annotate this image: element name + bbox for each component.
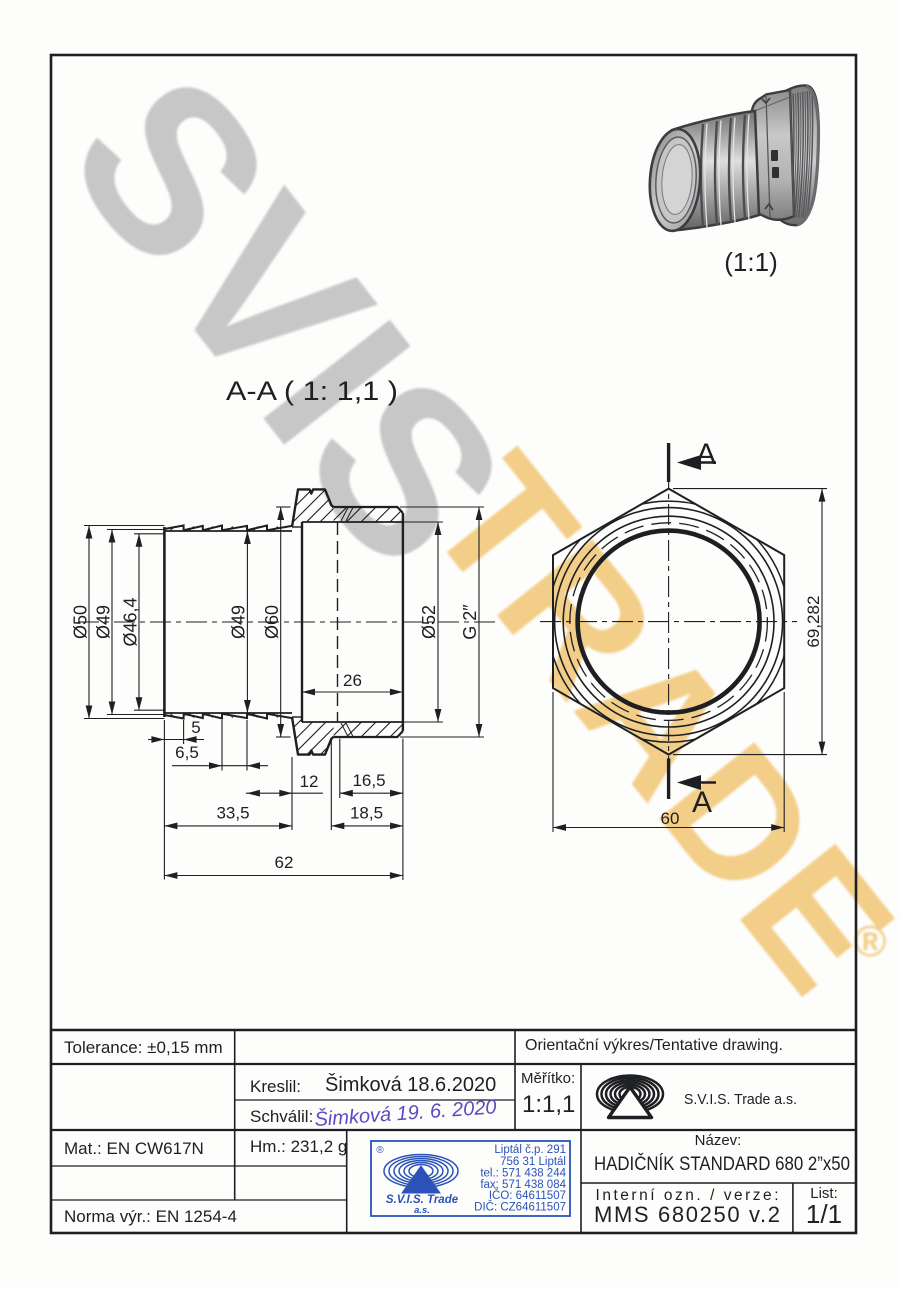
svg-text:Kreslil:: Kreslil: <box>250 1077 301 1096</box>
svg-text:62: 62 <box>275 853 294 872</box>
svg-text:a.s.: a.s. <box>414 1205 430 1216</box>
svg-text:5: 5 <box>191 718 200 737</box>
svg-text:1/1: 1/1 <box>806 1199 842 1229</box>
svg-text:Měřítko:: Měřítko: <box>521 1070 575 1087</box>
svg-text:Ø49: Ø49 <box>94 605 114 639</box>
svg-text:Ø46,4: Ø46,4 <box>121 597 141 646</box>
svg-text:tel.: 571 438 244: tel.: 571 438 244 <box>480 1168 566 1180</box>
svg-text:Orientační výkres/Tentative dr: Orientační výkres/Tentative drawing. <box>525 1037 783 1054</box>
svg-text:DIČ: CZ64611507: DIČ: CZ64611507 <box>474 1201 566 1214</box>
svg-text:16,5: 16,5 <box>352 771 385 790</box>
svg-text:®: ® <box>376 1145 384 1156</box>
svg-text:60: 60 <box>661 809 680 828</box>
svg-text:33,5: 33,5 <box>216 804 249 823</box>
svg-text:Liptál č.p. 291: Liptál č.p. 291 <box>494 1144 566 1156</box>
svg-text:A: A <box>696 438 716 471</box>
svg-text:Hm.: 231,2 g: Hm.: 231,2 g <box>250 1137 347 1156</box>
svg-text:Ø52: Ø52 <box>419 605 439 639</box>
svg-text:MMS 680250 v.2: MMS 680250 v.2 <box>594 1202 780 1227</box>
svg-text:Ø49: Ø49 <box>229 605 249 639</box>
svg-text:Název:: Název: <box>695 1132 742 1149</box>
svg-text:G 2″: G 2″ <box>460 604 480 640</box>
svg-text:S.V.I.S. Trade a.s.: S.V.I.S. Trade a.s. <box>684 1091 797 1108</box>
svg-text:26: 26 <box>343 671 362 690</box>
svg-text:756 31 Liptál: 756 31 Liptál <box>500 1156 566 1168</box>
svg-text:6,5: 6,5 <box>175 743 199 762</box>
svg-text:1:1,1: 1:1,1 <box>522 1091 575 1118</box>
svg-text:A-A ( 1: 1,1 ): A-A ( 1: 1,1 ) <box>226 376 398 406</box>
svg-text:Schválil:: Schválil: <box>250 1107 313 1126</box>
svg-text:A: A <box>692 786 712 819</box>
svg-text:12: 12 <box>300 772 319 791</box>
svg-text:69,282: 69,282 <box>804 596 823 648</box>
svg-text:IČO: 64611507: IČO: 64611507 <box>489 1189 566 1202</box>
svg-text:Mat.: EN CW617N: Mat.: EN CW617N <box>64 1139 204 1158</box>
svg-text:®: ® <box>854 917 886 966</box>
svg-text:Šimková 18.6.2020: Šimková 18.6.2020 <box>325 1073 496 1096</box>
svg-text:Ø60: Ø60 <box>262 605 282 639</box>
svg-text:18,5: 18,5 <box>350 804 383 823</box>
svg-text:Ø50: Ø50 <box>71 605 91 639</box>
svg-text:Norma výr.: EN 1254-4: Norma výr.: EN 1254-4 <box>64 1207 237 1226</box>
svg-text:(1:1): (1:1) <box>724 247 777 277</box>
svg-text:Tolerance: ±0,15 mm: Tolerance: ±0,15 mm <box>64 1038 223 1057</box>
svg-text:HADIČNÍK STANDARD 680 2”x50: HADIČNÍK STANDARD 680 2”x50 <box>594 1153 850 1175</box>
